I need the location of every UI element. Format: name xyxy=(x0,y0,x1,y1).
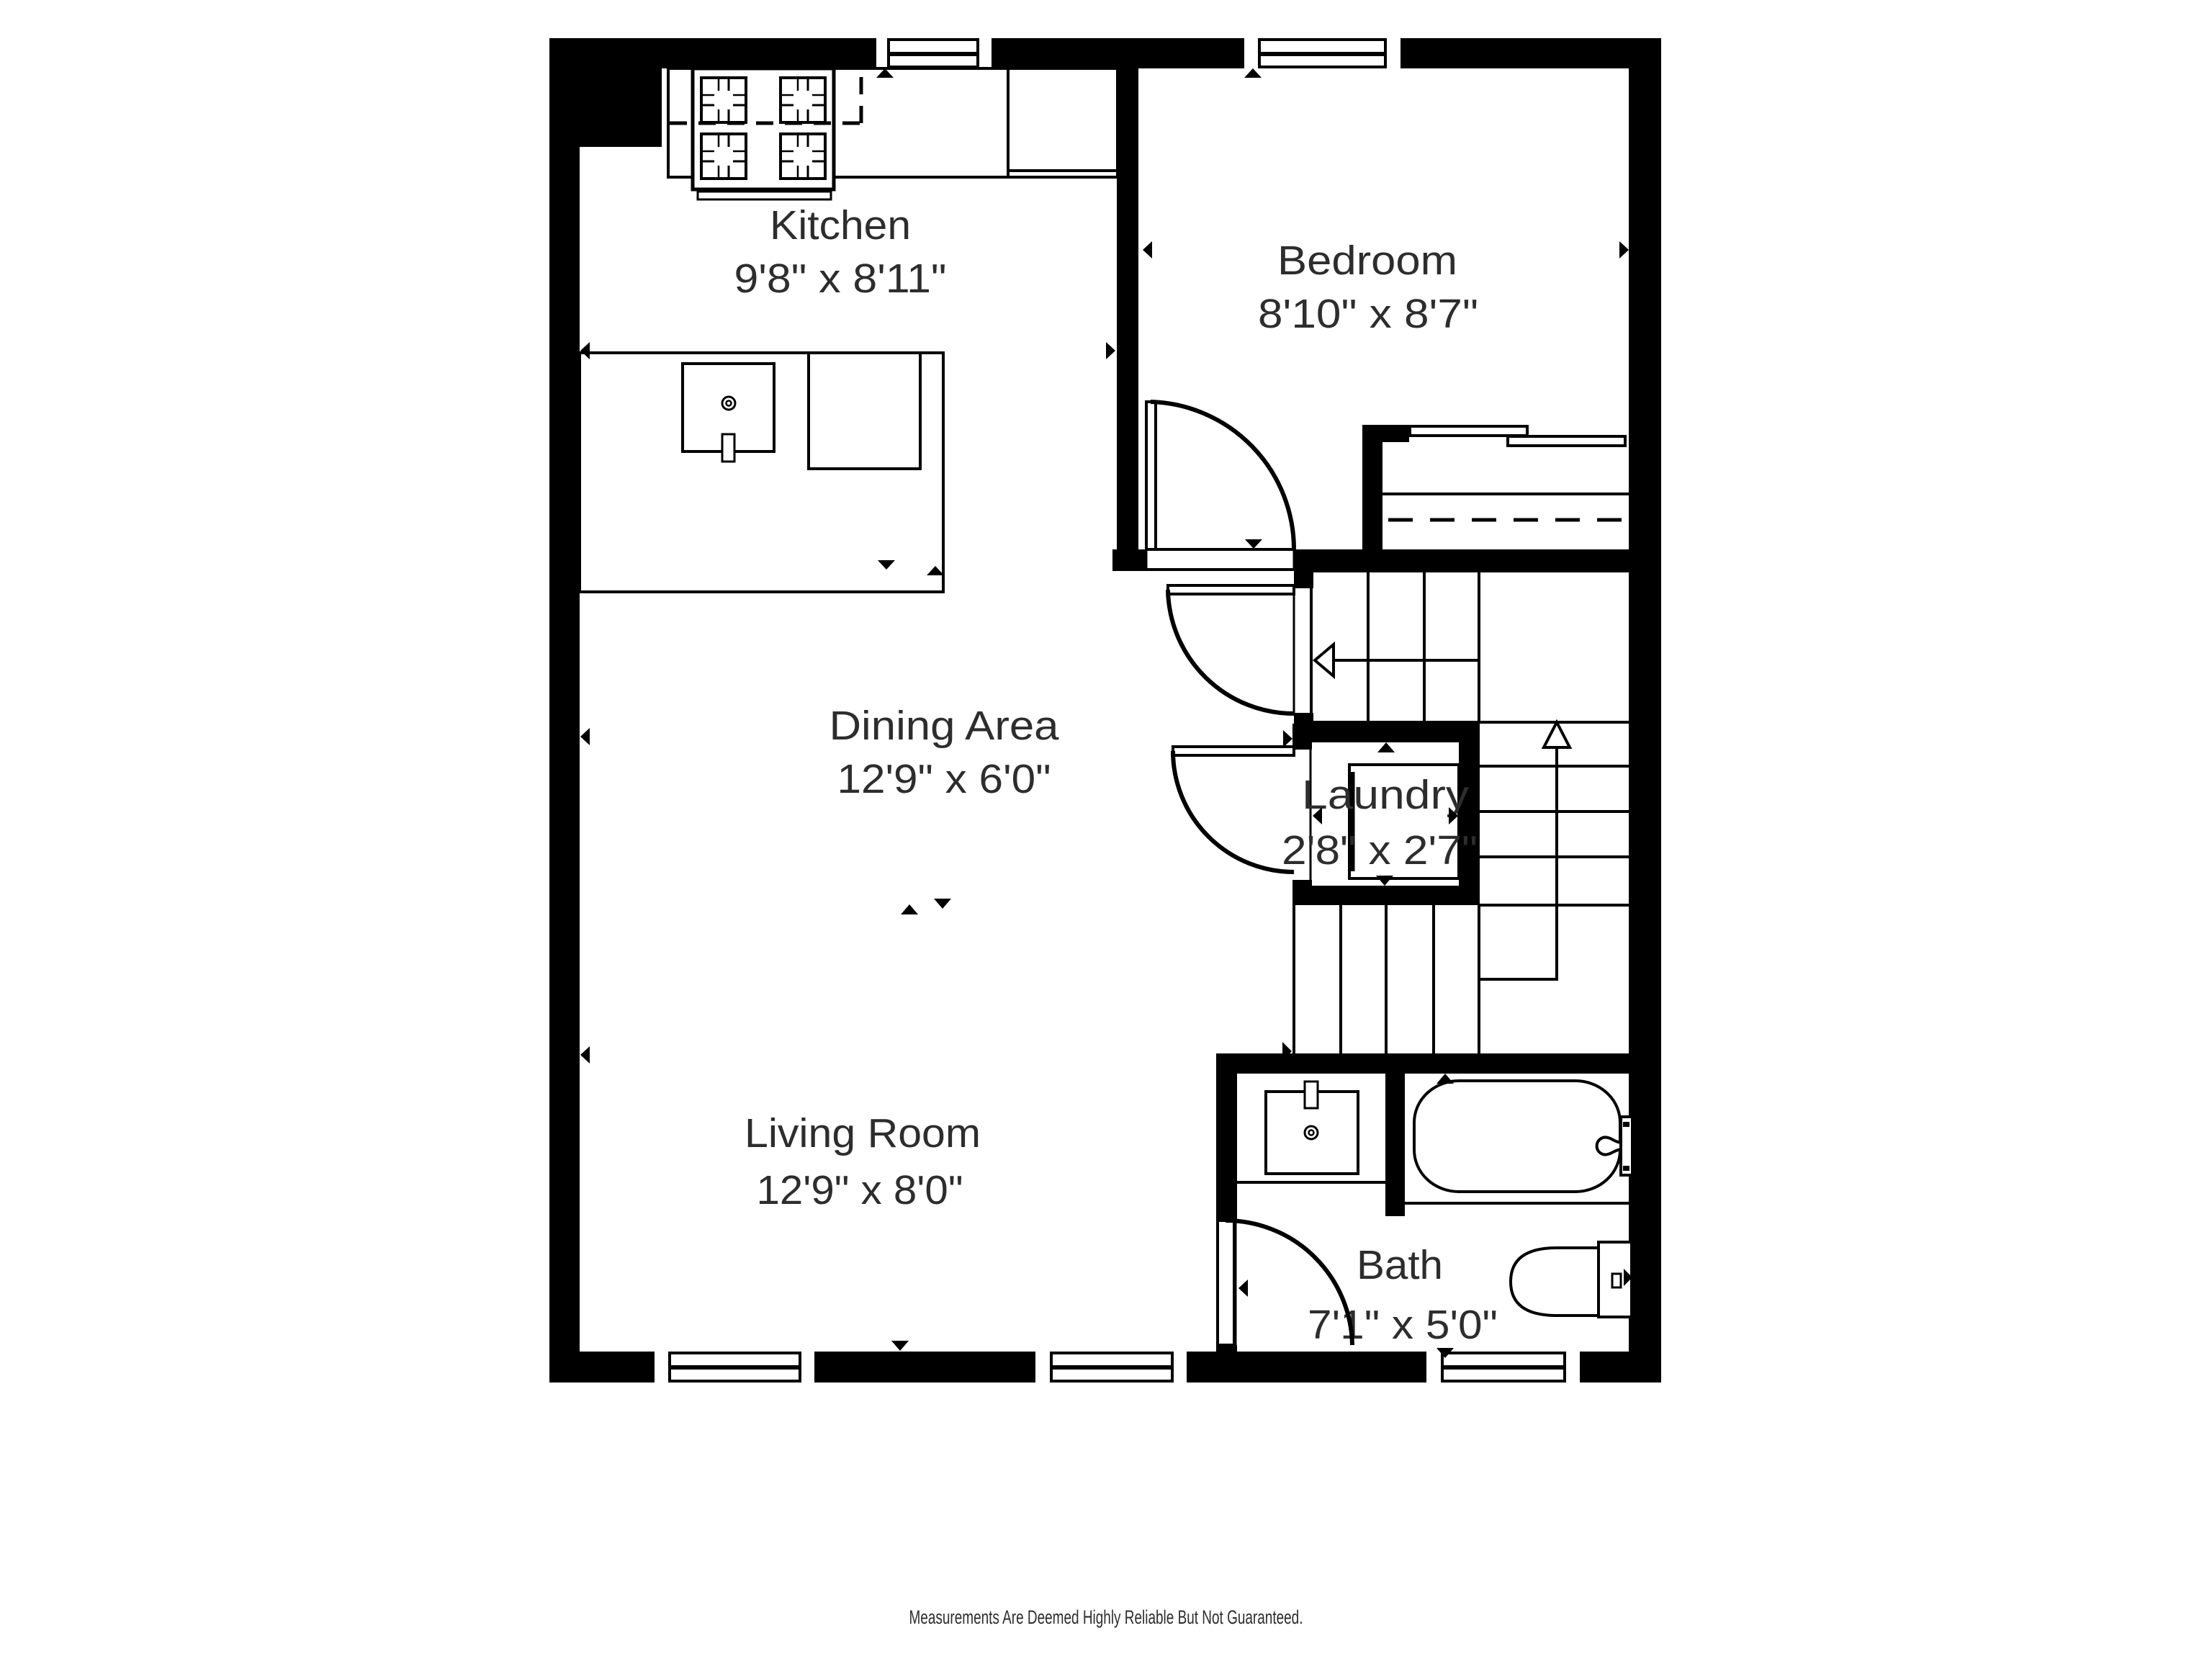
svg-text:12'9" x 8'0": 12'9" x 8'0" xyxy=(757,1167,963,1213)
svg-text:Bedroom: Bedroom xyxy=(1277,238,1457,284)
svg-text:7'1" x 5'0": 7'1" x 5'0" xyxy=(1308,1302,1498,1348)
svg-text:Bath: Bath xyxy=(1357,1242,1443,1288)
svg-text:8'10" x 8'7": 8'10" x 8'7" xyxy=(1258,291,1478,337)
svg-text:Kitchen: Kitchen xyxy=(770,202,911,248)
svg-text:9'8" x 8'11": 9'8" x 8'11" xyxy=(734,256,947,302)
svg-text:Measurements Are Deemed Highly: Measurements Are Deemed Highly Reliable … xyxy=(909,1606,1303,1628)
svg-text:2'8" x 2'7": 2'8" x 2'7" xyxy=(1282,827,1478,873)
svg-text:12'9" x 6'0": 12'9" x 6'0" xyxy=(837,756,1051,802)
svg-text:Living Room: Living Room xyxy=(745,1110,981,1156)
svg-text:Laundry: Laundry xyxy=(1302,772,1470,818)
svg-text:Dining Area: Dining Area xyxy=(829,703,1059,749)
